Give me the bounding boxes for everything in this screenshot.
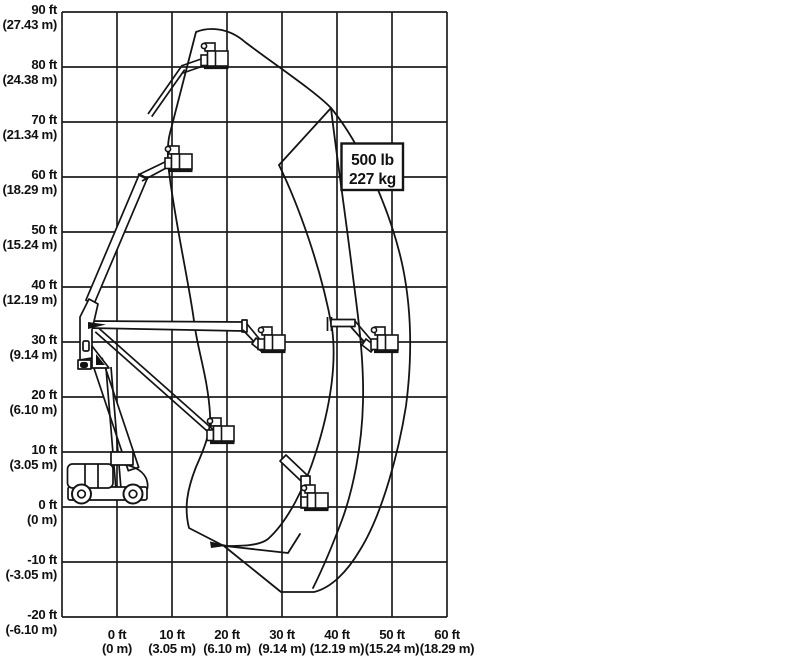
x-label-m: (15.24 m) <box>365 641 419 656</box>
y-label-m: (3.05 m) <box>10 457 57 472</box>
y-label-m: (0 m) <box>27 512 57 527</box>
reach-diagram-page: 500 lb 227 kg 90 ft (27.43 m) 80 ft (24.… <box>0 0 800 656</box>
x-label-m: (6.10 m) <box>203 641 250 656</box>
x-label-ft: 50 ft <box>379 627 406 642</box>
y-label-m: (24.38 m) <box>3 72 57 87</box>
x-label-m: (12.19 m) <box>310 641 364 656</box>
x-axis-labels: 0 ft (0 m) 10 ft (3.05 m) 20 ft (6.10 m)… <box>102 627 474 656</box>
y-label-m: (-6.10 m) <box>5 622 57 637</box>
boom-piece-50ft <box>331 320 355 327</box>
engine-box <box>68 464 114 488</box>
boom-horizontal-30ft <box>88 321 243 331</box>
y-label-m: (9.14 m) <box>10 347 57 362</box>
y-label-m: (21.34 m) <box>3 127 57 142</box>
x-label-ft: 0 ft <box>108 627 127 642</box>
reach-diagram: 500 lb 227 kg 90 ft (27.43 m) 80 ft (24.… <box>0 0 800 656</box>
riser-foot-hole <box>80 362 88 368</box>
x-label-ft: 10 ft <box>159 627 186 642</box>
y-label-m: (-3.05 m) <box>5 567 57 582</box>
y-label-ft: 0 ft <box>38 497 57 512</box>
grid-horizontal-lines <box>62 12 447 617</box>
envelope-bottom-links <box>225 534 300 553</box>
x-label-m: (3.05 m) <box>148 641 195 656</box>
platform-60ft <box>165 146 193 171</box>
capacity-lb: 500 lb <box>351 152 394 169</box>
y-label-m: (27.43 m) <box>3 17 57 32</box>
y-label-ft: 60 ft <box>31 167 58 182</box>
y-label-ft: -10 ft <box>27 552 58 567</box>
platform-top-80ft <box>201 43 229 68</box>
y-label-m: (18.29 m) <box>3 182 57 197</box>
y-label-ft: 90 ft <box>31 2 58 17</box>
grid <box>62 12 447 617</box>
y-axis-labels: 90 ft (27.43 m) 80 ft (24.38 m) 70 ft (2… <box>3 2 58 637</box>
y-label-ft: -20 ft <box>27 607 58 622</box>
y-label-m: (15.24 m) <box>3 237 57 252</box>
x-label-ft: 20 ft <box>214 627 241 642</box>
y-label-ft: 70 ft <box>31 112 58 127</box>
x-label-ft: 40 ft <box>324 627 351 642</box>
y-label-m: (12.19 m) <box>3 292 57 307</box>
x-label-m: (0 m) <box>102 641 132 656</box>
y-label-ft: 20 ft <box>31 387 58 402</box>
y-label-ft: 10 ft <box>31 442 58 457</box>
y-label-ft: 50 ft <box>31 222 58 237</box>
platform-14ft <box>207 418 235 443</box>
wheel-rear-hub <box>129 490 137 498</box>
boom-telescope-80ft <box>148 67 185 117</box>
y-label-m: (6.10 m) <box>10 402 57 417</box>
x-label-m: (9.14 m) <box>258 641 305 656</box>
y-label-ft: 40 ft <box>31 277 58 292</box>
capacity-kg: 227 kg <box>349 171 396 188</box>
y-label-ft: 30 ft <box>31 332 58 347</box>
x-label-ft: 30 ft <box>269 627 296 642</box>
x-label-m: (18.29 m) <box>420 641 474 656</box>
x-label-ft: 60 ft <box>434 627 461 642</box>
capacity-label: 500 lb 227 kg <box>342 144 404 191</box>
envelope-inner-boundary-b <box>225 165 334 546</box>
y-label-ft: 80 ft <box>31 57 58 72</box>
turret <box>111 452 133 465</box>
wheel-front-hub <box>78 490 86 498</box>
platform-30ft-far <box>371 327 399 352</box>
grid-vertical-lines <box>62 12 447 617</box>
platform-ground <box>301 485 329 510</box>
envelope-notch-line <box>279 108 331 165</box>
boom-horizontal-end-cap <box>242 320 247 332</box>
